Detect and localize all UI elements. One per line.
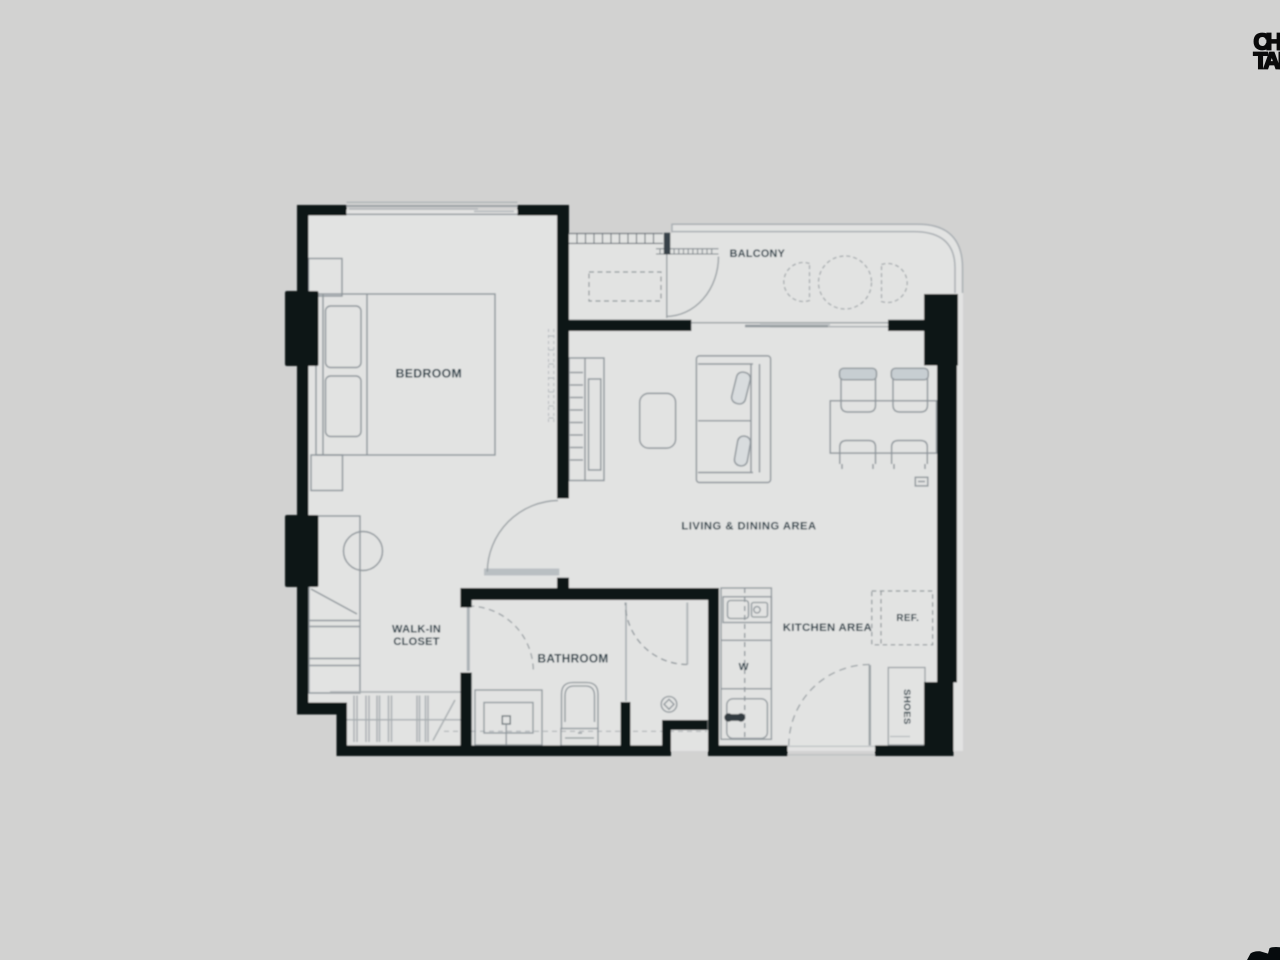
svg-text:BALCONY: BALCONY [730,248,786,260]
svg-text:LIVING & DINING AREA: LIVING & DINING AREA [681,521,816,533]
svg-text:CLOSET: CLOSET [393,636,439,648]
svg-text:BATHROOM: BATHROOM [538,651,609,665]
svg-text:WALK-IN: WALK-IN [392,624,441,636]
svg-text:KITCHEN AREA: KITCHEN AREA [783,622,872,634]
svg-text:W: W [739,661,749,673]
svg-text:BEDROOM: BEDROOM [396,367,462,381]
svg-text:SHOES: SHOES [901,689,912,725]
svg-text:TAN: TAN [1254,48,1280,74]
svg-text:REF.: REF. [896,613,919,624]
